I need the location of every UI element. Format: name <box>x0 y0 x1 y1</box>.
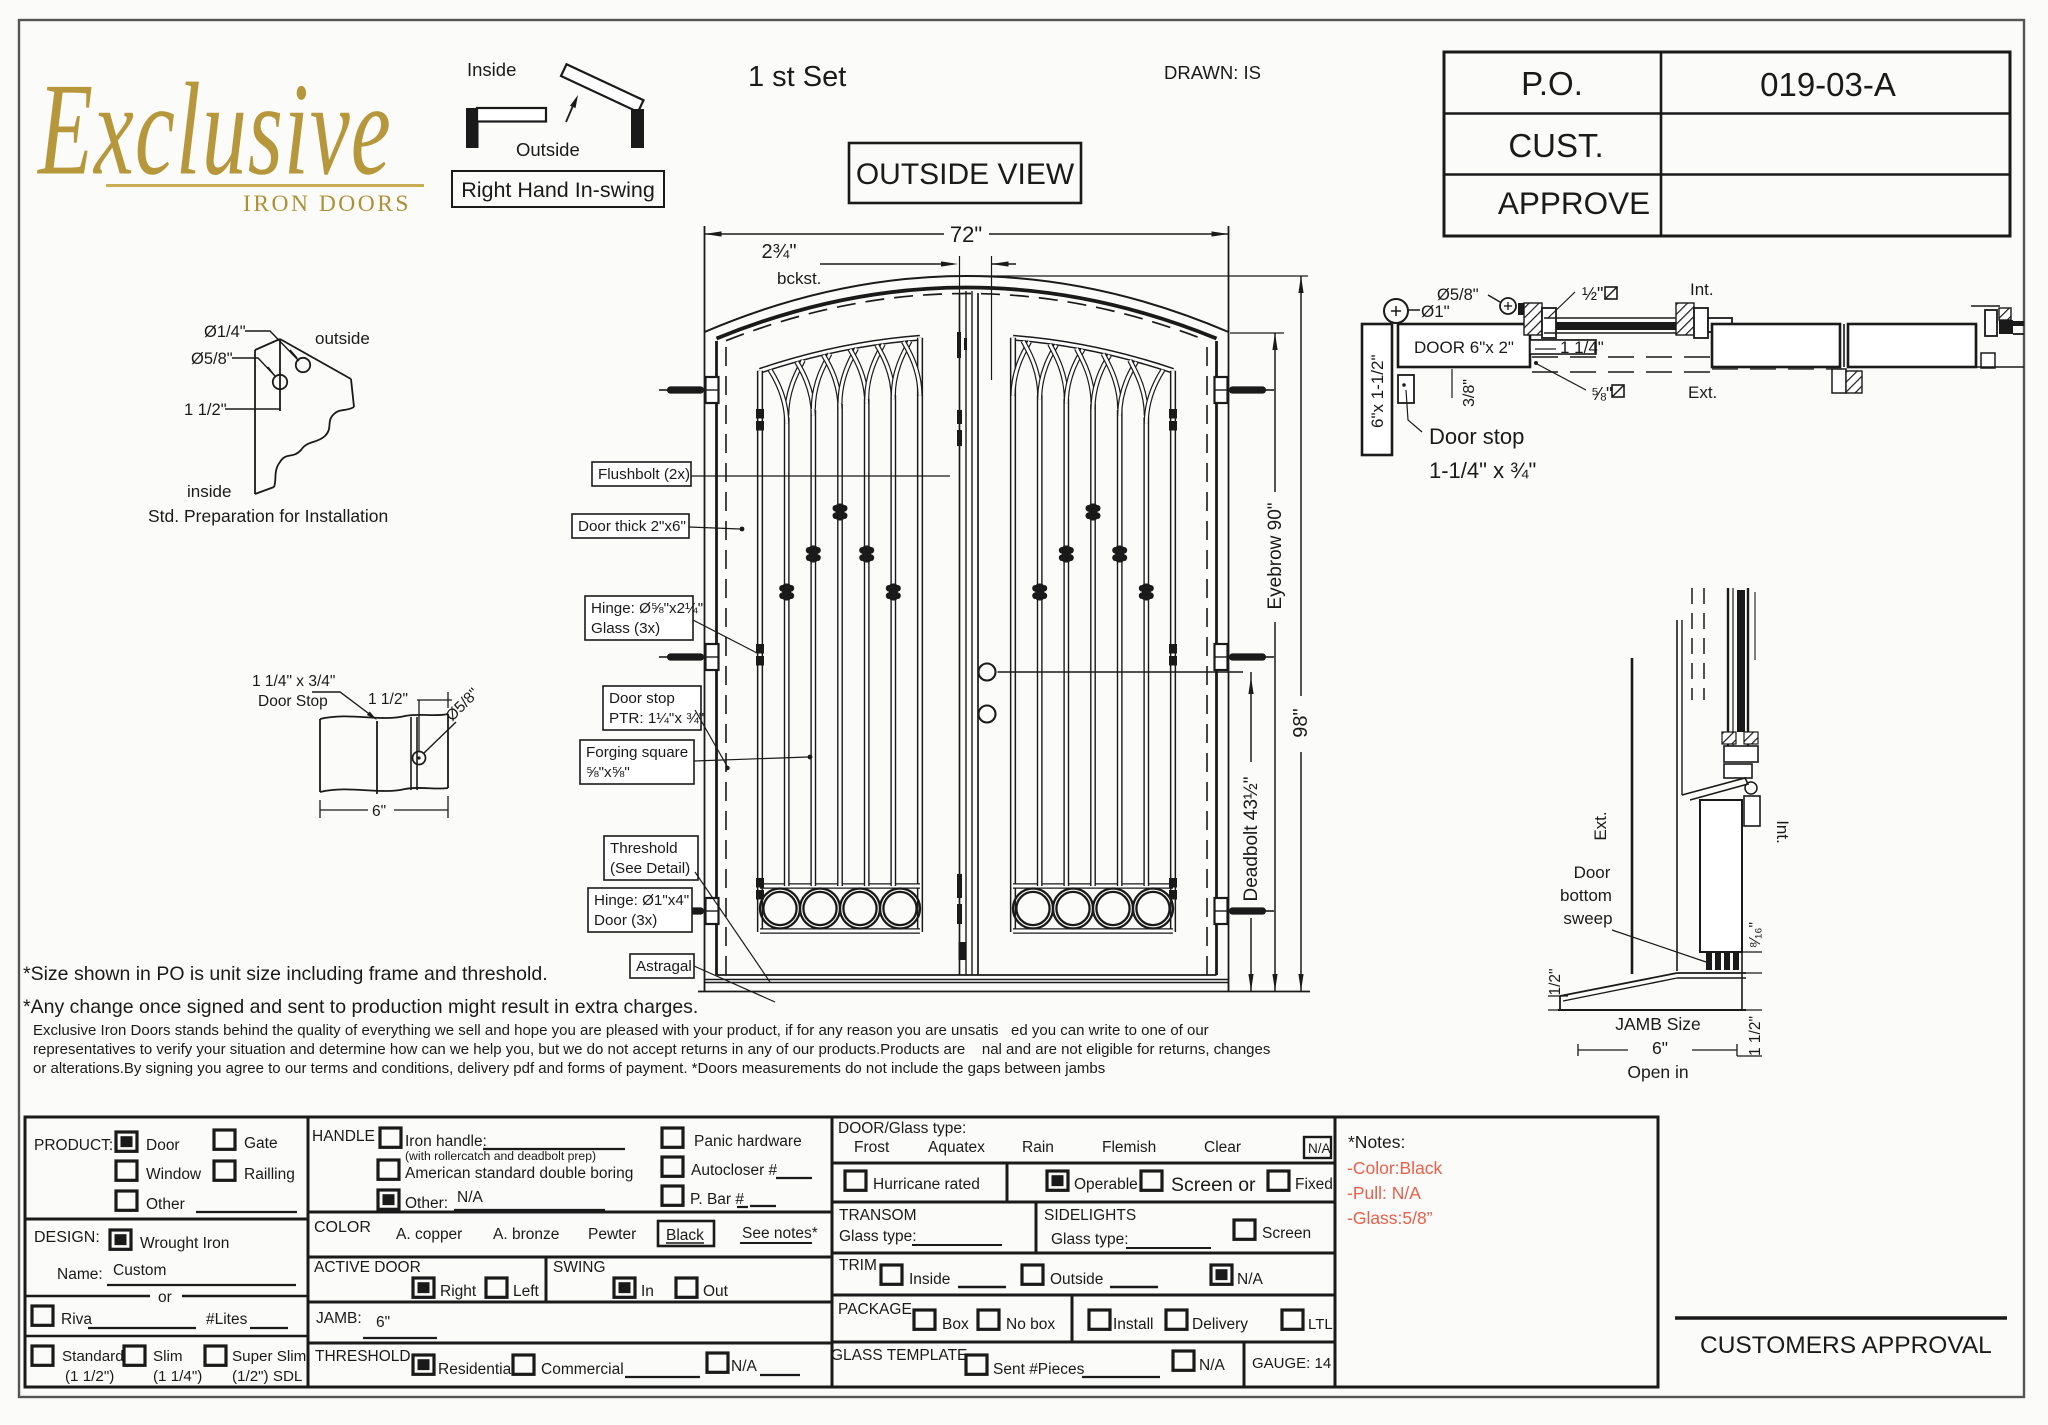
svg-text:Open in: Open in <box>1627 1062 1688 1082</box>
svg-text:98": 98" <box>1290 708 1312 737</box>
svg-text:APPROVE: APPROVE <box>1498 185 1650 221</box>
svg-text:N/A: N/A <box>1199 1357 1226 1374</box>
svg-text:P. Bar #: P. Bar # <box>690 1191 744 1208</box>
svg-text:Super Slim: Super Slim <box>232 1348 306 1365</box>
svg-text:Out: Out <box>703 1283 729 1300</box>
svg-text:Ext.: Ext. <box>1688 383 1717 402</box>
svg-text:(See Detail): (See Detail) <box>610 860 690 877</box>
svg-text:6"x 1-1/2": 6"x 1-1/2" <box>1368 355 1387 429</box>
svg-text:Black: Black <box>666 1227 704 1244</box>
svg-text:-Glass:5/8”: -Glass:5/8” <box>1347 1208 1433 1228</box>
svg-text:CUST.: CUST. <box>1508 127 1603 164</box>
svg-text:bckst.: bckst. <box>777 269 821 288</box>
svg-text:Residential: Residential <box>438 1361 515 1378</box>
svg-text:A. bronze: A. bronze <box>493 1226 559 1243</box>
svg-text:IRON DOORS: IRON DOORS <box>243 191 411 217</box>
svg-text:Ext.: Ext. <box>1591 811 1610 840</box>
svg-text:Glass type:: Glass type: <box>1051 1231 1129 1248</box>
svg-text:2¾": 2¾" <box>762 241 797 263</box>
svg-text:Sent #Pieces: Sent #Pieces <box>993 1361 1085 1378</box>
svg-text:CUSTOMERS APPROVAL: CUSTOMERS APPROVAL <box>1700 1332 1992 1359</box>
svg-text:OUTSIDE VIEW: OUTSIDE VIEW <box>856 158 1075 191</box>
svg-text:Outside: Outside <box>1050 1271 1103 1288</box>
svg-text:Eyebrow 90": Eyebrow 90" <box>1265 502 1286 609</box>
svg-text:Flemish: Flemish <box>1102 1139 1156 1156</box>
svg-text:Hinge: Ø⅝"x2¼": Hinge: Ø⅝"x2¼" <box>591 600 703 617</box>
svg-text:Riva: Riva <box>61 1311 92 1328</box>
svg-text:DESIGN:: DESIGN: <box>34 1229 100 1246</box>
svg-text:Door: Door <box>146 1137 180 1154</box>
svg-text:DRAWN: IS: DRAWN: IS <box>1164 62 1261 83</box>
svg-text:SWING: SWING <box>553 1259 606 1276</box>
svg-text:Standard: Standard <box>62 1348 124 1365</box>
svg-text:72": 72" <box>950 222 982 247</box>
svg-text:In: In <box>641 1283 654 1300</box>
svg-text:representatives to verify your: representatives to verify your situation… <box>33 1041 1270 1058</box>
svg-text:Right Hand In-swing: Right Hand In-swing <box>461 178 655 202</box>
svg-text:Exclusive Iron Doors stands be: Exclusive Iron Doors stands behind the q… <box>33 1022 1209 1039</box>
svg-text:Ø5/8": Ø5/8" <box>191 350 233 368</box>
svg-text:*Notes:: *Notes: <box>1348 1132 1405 1152</box>
svg-text:Deadbolt 43½": Deadbolt 43½" <box>1241 776 1262 901</box>
svg-text:Glass type:: Glass type: <box>839 1228 917 1245</box>
svg-text:6": 6" <box>372 803 386 820</box>
svg-text:inside: inside <box>187 482 231 501</box>
svg-text:Commercial: Commercial <box>541 1361 624 1378</box>
svg-text:PRODUCT:: PRODUCT: <box>34 1137 113 1154</box>
svg-text:*Size shown in PO is unit size: *Size shown in PO is unit size including… <box>23 963 548 985</box>
svg-text:Inside: Inside <box>909 1271 950 1288</box>
svg-text:outside: outside <box>315 329 370 348</box>
svg-text:or alterations.By signing you: or alterations.By signing you agree to o… <box>33 1060 1105 1077</box>
svg-text:6": 6" <box>1652 1038 1668 1058</box>
svg-text:-Pull: N/A: -Pull: N/A <box>1347 1183 1421 1203</box>
svg-text:N/A: N/A <box>457 1189 484 1206</box>
svg-text:1 1/4": 1 1/4" <box>1560 338 1604 357</box>
svg-text:Threshold: Threshold <box>610 840 678 857</box>
svg-text:N/A: N/A <box>731 1358 758 1375</box>
svg-text:Door stop: Door stop <box>609 690 675 707</box>
svg-text:1 1/2": 1 1/2" <box>1747 1016 1764 1056</box>
svg-text:Int.: Int. <box>1773 820 1792 844</box>
svg-text:Flushbolt (2x): Flushbolt (2x) <box>598 466 690 483</box>
svg-text:N/A: N/A <box>1237 1271 1264 1288</box>
svg-text:Gate: Gate <box>244 1135 278 1152</box>
svg-text:019-03-A: 019-03-A <box>1760 66 1896 103</box>
svg-text:Screen: Screen <box>1262 1225 1311 1242</box>
svg-text:1 1/2": 1 1/2" <box>184 401 227 419</box>
svg-text:GAUGE: 14: GAUGE: 14 <box>1252 1355 1331 1372</box>
svg-text:HANDLE: HANDLE <box>312 1128 375 1145</box>
svg-text:Astragal: Astragal <box>636 958 692 975</box>
svg-text:1/2": 1/2" <box>1547 968 1564 995</box>
svg-text:-Color:Black: -Color:Black <box>1347 1158 1443 1178</box>
svg-text:1-1/4" x ¾": 1-1/4" x ¾" <box>1429 458 1536 483</box>
svg-text:Right: Right <box>440 1283 477 1300</box>
svg-text:Name:: Name: <box>57 1266 103 1283</box>
svg-text:or: or <box>158 1289 172 1306</box>
svg-text:Box: Box <box>942 1316 969 1333</box>
svg-text:Other:: Other: <box>405 1195 448 1212</box>
svg-text:Install: Install <box>1113 1316 1154 1333</box>
svg-text:JAMB:: JAMB: <box>316 1310 362 1327</box>
svg-text:Panic hardware: Panic hardware <box>694 1133 802 1150</box>
svg-text:Door Stop: Door Stop <box>258 693 328 710</box>
svg-text:Glass (3x): Glass (3x) <box>591 620 660 637</box>
svg-text:SIDELIGHTS: SIDELIGHTS <box>1044 1207 1136 1224</box>
svg-text:⅝"x⅝": ⅝"x⅝" <box>586 764 630 781</box>
svg-text:Screen or: Screen or <box>1171 1174 1256 1196</box>
svg-text:JAMB Size: JAMB Size <box>1615 1014 1701 1034</box>
svg-text:1 1/2": 1 1/2" <box>368 691 408 708</box>
svg-text:(1 1/4"): (1 1/4") <box>153 1368 202 1385</box>
svg-text:3/8": 3/8" <box>1461 379 1478 407</box>
svg-text:Pewter: Pewter <box>588 1226 636 1243</box>
svg-text:Ø1/4": Ø1/4" <box>204 323 246 341</box>
svg-text:GLASS TEMPLATE: GLASS TEMPLATE <box>831 1347 967 1364</box>
svg-text:Ø5/8": Ø5/8" <box>1437 286 1479 304</box>
svg-text:Rain: Rain <box>1022 1139 1054 1156</box>
svg-text:A. copper: A. copper <box>396 1226 462 1243</box>
svg-text:Ø1": Ø1" <box>1421 302 1450 321</box>
svg-text:American standard double borin: American standard double boring <box>405 1165 633 1182</box>
svg-text:See notes*: See notes* <box>742 1225 818 1242</box>
svg-text:Door: Door <box>1574 863 1611 882</box>
svg-text:(1 1/2"): (1 1/2") <box>65 1368 114 1385</box>
svg-text:Delivery: Delivery <box>1192 1316 1248 1333</box>
svg-text:P.O.: P.O. <box>1521 65 1583 102</box>
svg-text:(with rollercatch and deadbolt: (with rollercatch and deadbolt prep) <box>405 1149 596 1163</box>
svg-text:Hinge: Ø1"x4": Hinge: Ø1"x4" <box>594 892 689 909</box>
svg-text:Iron handle:: Iron handle: <box>405 1133 487 1150</box>
svg-text:Door thick 2"x6": Door thick 2"x6" <box>578 518 686 535</box>
svg-text:PACKAGE: PACKAGE <box>838 1301 912 1318</box>
svg-text:DOOR 6"x 2": DOOR 6"x 2" <box>1414 338 1514 357</box>
svg-text:Int.: Int. <box>1690 280 1714 299</box>
svg-text:bottom: bottom <box>1560 886 1612 905</box>
svg-text:N/A: N/A <box>1308 1141 1331 1156</box>
svg-text:½": ½" <box>1582 284 1603 304</box>
svg-text:DOOR/Glass type:: DOOR/Glass type: <box>838 1120 966 1137</box>
svg-text:Frost: Frost <box>854 1139 890 1156</box>
svg-text:#Lites: #Lites <box>206 1311 248 1328</box>
svg-text:Hurricane rated: Hurricane rated <box>873 1176 980 1193</box>
svg-text:Other: Other <box>146 1196 185 1213</box>
svg-text:Custom: Custom <box>113 1262 166 1279</box>
svg-text:Slim: Slim <box>153 1348 183 1365</box>
svg-text:(1/2") SDL: (1/2") SDL <box>232 1368 302 1385</box>
svg-text:TRIM: TRIM <box>839 1257 877 1274</box>
svg-text:1 st Set: 1 st Set <box>748 61 846 93</box>
svg-text:Wrought Iron: Wrought Iron <box>140 1235 229 1252</box>
svg-text:ACTIVE DOOR: ACTIVE DOOR <box>314 1259 421 1276</box>
svg-text:Outside: Outside <box>516 139 580 160</box>
svg-text:No box: No box <box>1006 1316 1055 1333</box>
svg-text:*Any change once signed and se: *Any change once signed and sent to prod… <box>23 996 698 1018</box>
svg-text:Forging square: Forging square <box>586 744 688 761</box>
svg-text:Door (3x): Door (3x) <box>594 912 657 929</box>
svg-text:1 1/4" x 3/4": 1 1/4" x 3/4" <box>252 673 335 690</box>
svg-text:TRANSOM: TRANSOM <box>839 1207 917 1224</box>
svg-text:Window: Window <box>146 1166 202 1183</box>
svg-text:⁸⁄₁₆": ⁸⁄₁₆" <box>1747 922 1764 948</box>
svg-text:Fixed: Fixed <box>1295 1176 1333 1193</box>
svg-text:LTL: LTL <box>1308 1316 1333 1333</box>
svg-text:Exclusive: Exclusive <box>36 57 391 203</box>
svg-text:Door stop: Door stop <box>1429 424 1524 449</box>
svg-text:COLOR: COLOR <box>314 1219 371 1236</box>
svg-text:Clear: Clear <box>1204 1139 1241 1156</box>
svg-text:THRESHOLD: THRESHOLD <box>315 1348 411 1365</box>
svg-text:Left: Left <box>513 1283 540 1300</box>
svg-text:Aquatex: Aquatex <box>928 1139 985 1156</box>
svg-text:Autocloser #: Autocloser # <box>691 1162 778 1179</box>
svg-text:PTR: 1¼"x ¾": PTR: 1¼"x ¾" <box>609 710 704 727</box>
svg-text:Railling: Railling <box>244 1166 295 1183</box>
svg-text:⅝": ⅝" <box>1591 384 1612 404</box>
svg-text:Operable: Operable <box>1074 1176 1138 1193</box>
svg-text:Inside: Inside <box>467 59 516 80</box>
svg-text:6": 6" <box>376 1314 390 1331</box>
svg-text:sweep: sweep <box>1563 909 1612 928</box>
svg-text:Std. Preparation for Installat: Std. Preparation for Installation <box>148 506 388 526</box>
